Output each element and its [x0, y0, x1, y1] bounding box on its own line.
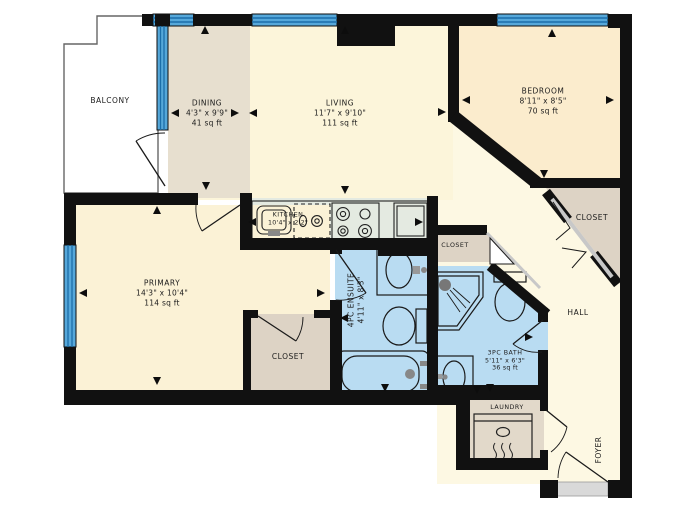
window-bedroom: [497, 14, 608, 26]
room-name: BEDROOM: [519, 86, 566, 96]
room-dim: 4'11" x 8'3": [356, 273, 366, 328]
ensuite-faucet: [413, 266, 420, 274]
room-label-laundry: LAUNDRY: [490, 404, 523, 412]
ensuite-faucet-knob: [421, 267, 427, 273]
room-name: 3PC BATH: [485, 350, 525, 358]
room-name: PRIMARY: [136, 278, 188, 288]
room-name: 4PC ENSUITE: [346, 273, 356, 328]
kitchen-faucet-icon: [268, 231, 280, 236]
bath-faucet-knob: [442, 374, 447, 379]
floorplan-page: BALCONY DINING 4'3" x 9'9" 41 sq ft LIVI…: [0, 0, 680, 520]
room-name: BALCONY: [90, 96, 129, 106]
room-dim: 8'11" x 8'5": [519, 96, 566, 106]
room-dim: 5'11" x 6'3": [485, 357, 525, 365]
room-label-living: LIVING 11'7" x 9'10" 111 sq ft: [314, 98, 366, 127]
room-name: CLOSET: [576, 213, 608, 223]
room-label-primary-closet: CLOSET: [272, 352, 304, 362]
room-area: 114 sq ft: [136, 298, 188, 308]
room-area: 41 sq ft: [186, 118, 228, 128]
room-label-bath: 3PC BATH 5'11" x 6'3" 36 sq ft: [485, 350, 525, 373]
room-area: 70 sq ft: [519, 106, 566, 116]
room-name: HALL: [567, 308, 588, 318]
room-label-balcony: BALCONY: [90, 96, 129, 106]
room-name: DINING: [186, 98, 228, 108]
room-dim: 14'3" x 10'4": [136, 288, 188, 298]
window-balcony-side: [157, 26, 168, 130]
entry-threshold: [556, 482, 608, 496]
window-living: [252, 14, 337, 26]
room-name: FOYER: [594, 437, 604, 464]
tub-drain: [405, 369, 415, 379]
room-dim: 4'3" x 9'9": [186, 108, 228, 118]
room-label-ensuite: 4PC ENSUITE 4'11" x 8'3": [346, 273, 366, 328]
room-label-hall: HALL: [567, 308, 588, 318]
room-label-primary: PRIMARY 14'3" x 10'4" 114 sq ft: [136, 278, 188, 307]
room-name: LAUNDRY: [490, 404, 523, 412]
room-name: LIVING: [314, 98, 366, 108]
floorplan-drawing: [0, 0, 680, 520]
room-name: CLOSET: [272, 352, 304, 362]
room-dim: 10'4" x 2'2": [268, 219, 308, 227]
room-label-bedroom-closet: CLOSET: [576, 213, 608, 223]
shower-head: [439, 279, 451, 291]
room-area: 36 sq ft: [485, 365, 525, 373]
window-primary: [64, 245, 76, 347]
room-label-kitchen: KITCHEN 10'4" x 2'2": [268, 211, 308, 226]
room-name: CLOSET: [441, 242, 468, 250]
room-dim: 11'7" x 9'10": [314, 108, 366, 118]
room-area: 111 sq ft: [314, 118, 366, 128]
room-label-bath-closet: CLOSET: [441, 242, 468, 250]
room-label-dining: DINING 4'3" x 9'9" 41 sq ft: [186, 98, 228, 127]
room-label-bedroom: BEDROOM 8'11" x 8'5" 70 sq ft: [519, 86, 566, 115]
room-label-foyer: FOYER: [594, 437, 604, 464]
room-name: KITCHEN: [268, 211, 308, 219]
